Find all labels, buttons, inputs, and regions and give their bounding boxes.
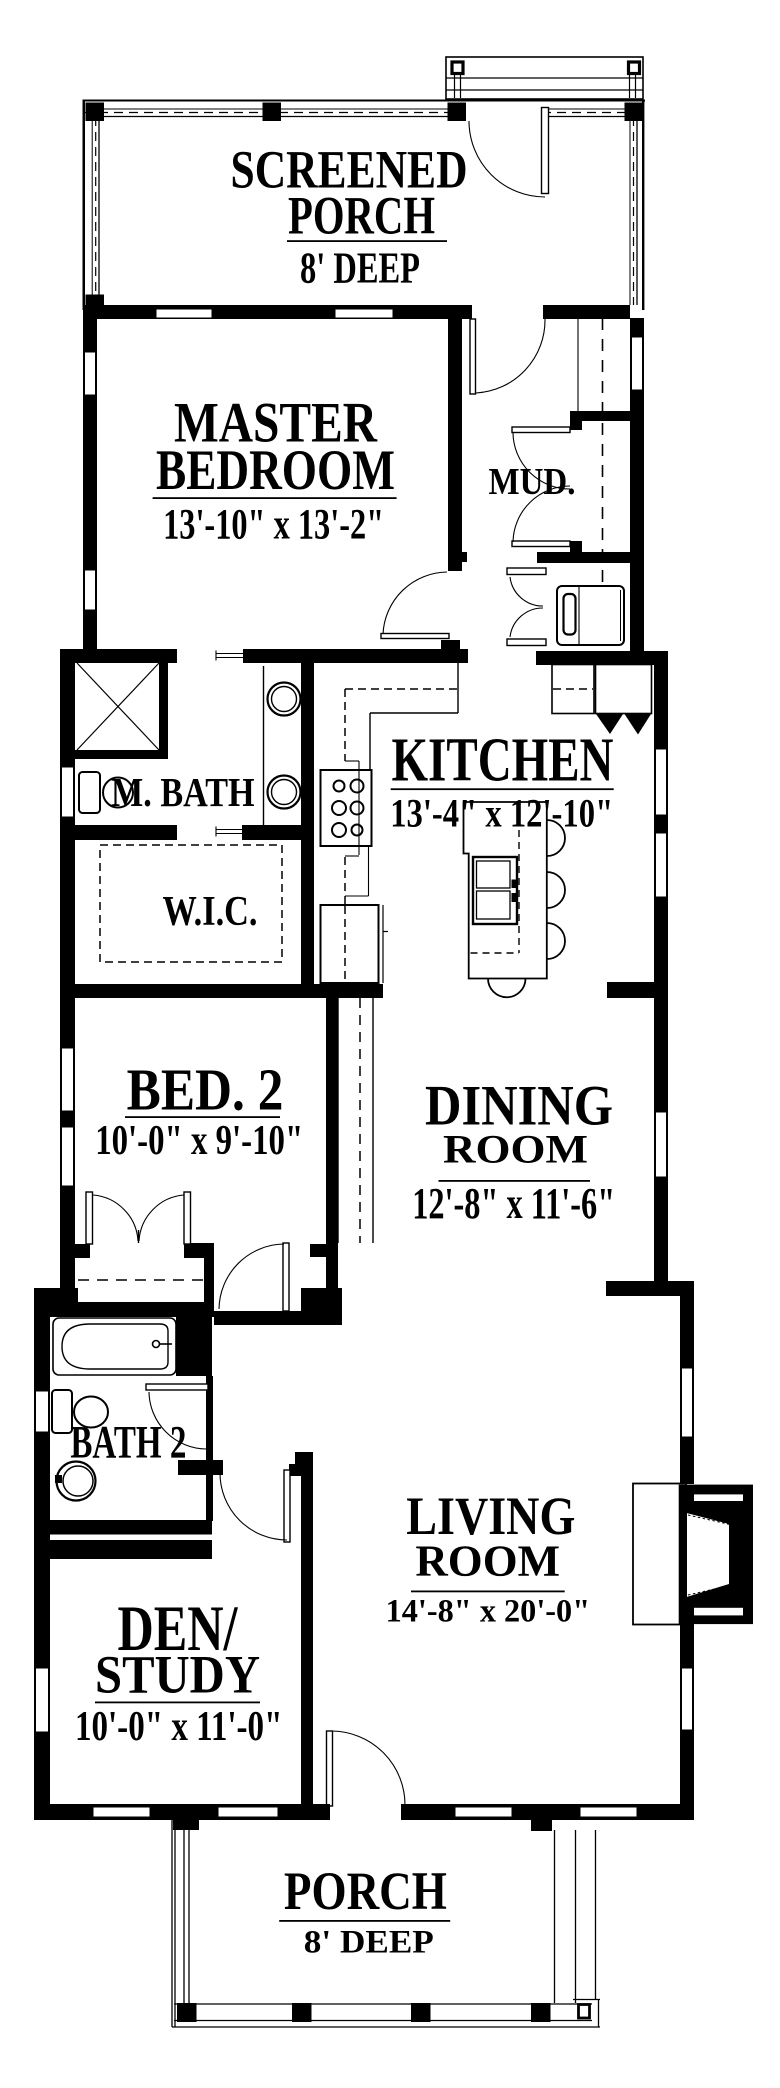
svg-text:12'-8" x 11'-6": 12'-8" x 11'-6" [412,1179,615,1228]
svg-text:BATH 2: BATH 2 [70,1417,186,1469]
svg-text:10'-0" x 11'-0": 10'-0" x 11'-0" [75,1704,283,1750]
svg-text:13'-10" x 13'-2": 13'-10" x 13'-2" [163,502,384,549]
svg-text:BED. 2: BED. 2 [127,1056,284,1122]
svg-text:13'-4" x 12'-10": 13'-4" x 12'-10" [390,791,613,836]
svg-text:PORCH: PORCH [288,185,435,245]
svg-text:BEDROOM: BEDROOM [156,439,395,502]
svg-text:14'-8" x 20'-0": 14'-8" x 20'-0" [386,1594,591,1630]
svg-text:PORCH: PORCH [284,1861,447,1921]
svg-text:8' DEEP: 8' DEEP [304,1924,434,1960]
svg-text:M. BATH: M. BATH [111,769,255,815]
svg-text:8' DEEP: 8' DEEP [300,244,420,293]
svg-text:MUD.: MUD. [489,461,576,503]
svg-text:10'-0" x 9'-10": 10'-0" x 9'-10" [95,1118,303,1164]
svg-text:STUDY: STUDY [95,1645,260,1705]
svg-text:ROOM: ROOM [443,1126,588,1171]
svg-text:KITCHEN: KITCHEN [392,727,614,795]
svg-text:ROOM: ROOM [415,1536,560,1586]
svg-text:W.I.C.: W.I.C. [163,889,258,935]
